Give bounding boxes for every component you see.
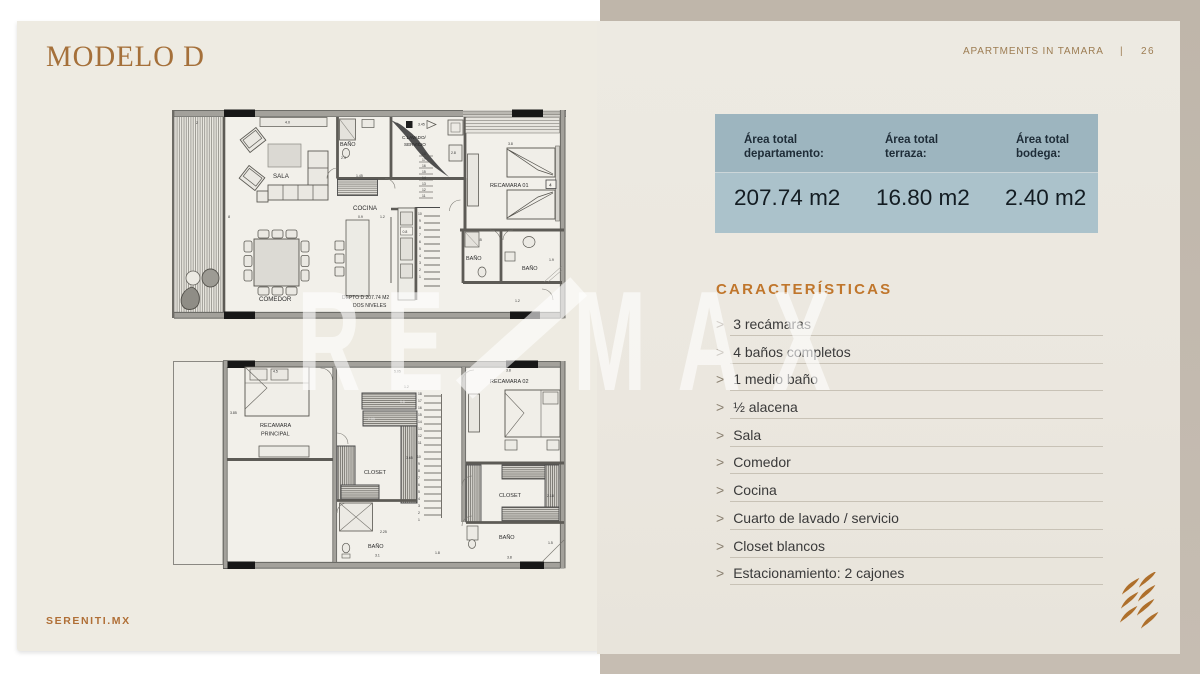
svg-text:2.4: 2.4	[341, 156, 346, 160]
svg-text:3.8: 3.8	[508, 142, 513, 146]
svg-text:2: 2	[418, 511, 420, 515]
svg-text:12: 12	[422, 188, 426, 192]
svg-text:BAÑO: BAÑO	[522, 265, 538, 272]
svg-text:7: 7	[418, 476, 420, 480]
svg-text:10: 10	[417, 455, 421, 459]
svg-text:1.9: 1.9	[549, 258, 554, 262]
svg-text:3.8: 3.8	[506, 369, 511, 373]
svg-text:3: 3	[418, 504, 420, 508]
svg-text:3.1: 3.1	[375, 554, 380, 558]
svg-text:8: 8	[228, 215, 230, 219]
svg-text:RECAMARA 02: RECAMARA 02	[490, 379, 529, 385]
svg-text:8: 8	[419, 226, 421, 230]
svg-text:BAÑO: BAÑO	[368, 543, 384, 550]
svg-text:BAÑO: BAÑO	[499, 534, 515, 541]
svg-text:4: 4	[549, 183, 552, 189]
svg-text:BAÑO: BAÑO	[466, 255, 482, 262]
svg-text:18: 18	[422, 152, 426, 156]
svg-text:1: 1	[418, 518, 420, 522]
svg-text:4: 4	[418, 497, 420, 501]
svg-text:1.2: 1.2	[515, 299, 520, 303]
svg-text:3.8: 3.8	[507, 556, 512, 560]
svg-text:4: 4	[419, 254, 421, 258]
svg-text:PRINCIPAL: PRINCIPAL	[261, 432, 290, 438]
svg-text:0.9: 0.9	[358, 215, 363, 219]
svg-text:C.LAVADO/: C.LAVADO/	[402, 135, 427, 140]
svg-text:4.0: 4.0	[285, 121, 290, 125]
svg-text:13: 13	[422, 182, 426, 186]
svg-text:2.25: 2.25	[380, 530, 387, 534]
svg-text:1.5: 1.5	[548, 541, 553, 545]
svg-text:6: 6	[419, 240, 421, 244]
svg-text:9: 9	[418, 462, 420, 466]
svg-text:COMEDOR: COMEDOR	[259, 296, 292, 303]
svg-text:1.2: 1.2	[380, 215, 385, 219]
svg-text:5: 5	[419, 247, 421, 251]
svg-text:2.18: 2.18	[547, 494, 554, 498]
svg-text:11: 11	[418, 441, 422, 445]
svg-text:14: 14	[422, 176, 426, 180]
svg-text:16: 16	[422, 164, 426, 168]
svg-text:15: 15	[422, 170, 426, 174]
svg-text:1.45: 1.45	[356, 174, 363, 178]
svg-text:13: 13	[418, 427, 422, 431]
svg-text:3.65: 3.65	[406, 456, 413, 460]
svg-text:3.45: 3.45	[418, 123, 425, 127]
svg-text:7: 7	[419, 233, 421, 237]
svg-text:6: 6	[418, 483, 420, 487]
svg-text:5: 5	[418, 490, 420, 494]
svg-text:SALA: SALA	[273, 173, 290, 180]
svg-text:12: 12	[418, 434, 422, 438]
svg-text:9: 9	[419, 219, 421, 223]
svg-text:2: 2	[196, 121, 198, 125]
svg-text:CLOSET: CLOSET	[364, 470, 387, 476]
svg-text:CLOSET: CLOSET	[499, 493, 522, 499]
svg-text:SERVICIO: SERVICIO	[404, 142, 426, 147]
svg-text:RECAMARA 01: RECAMARA 01	[490, 183, 529, 189]
svg-text:17: 17	[422, 158, 426, 162]
svg-text:2.8: 2.8	[451, 151, 456, 155]
svg-text:COCINA: COCINA	[353, 205, 378, 212]
svg-text:BAÑO: BAÑO	[340, 141, 356, 148]
svg-text:0.8: 0.8	[403, 230, 408, 234]
svg-text:11: 11	[422, 194, 426, 198]
svg-text:1.8: 1.8	[435, 551, 440, 555]
svg-text:4.5: 4.5	[273, 370, 278, 374]
svg-text:8: 8	[418, 469, 420, 473]
svg-text:RECAMARA: RECAMARA	[260, 423, 292, 429]
svg-text:3.85: 3.85	[230, 411, 237, 415]
svg-text:10: 10	[418, 212, 422, 216]
